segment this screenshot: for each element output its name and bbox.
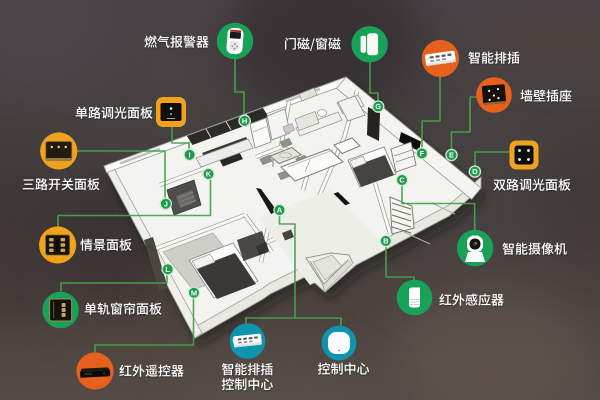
svg-text:L: L (165, 265, 170, 274)
svg-text:H: H (242, 116, 247, 125)
svg-text:D: D (472, 167, 478, 176)
svg-text:F: F (420, 149, 425, 158)
svg-text:I: I (189, 150, 191, 159)
svg-text:J: J (164, 199, 168, 208)
svg-text:A: A (277, 206, 283, 215)
svg-text:E: E (449, 151, 454, 160)
svg-text:B: B (383, 237, 389, 246)
svg-text:C: C (399, 176, 405, 185)
svg-text:G: G (375, 102, 381, 111)
svg-text:M: M (191, 288, 197, 297)
svg-text:K: K (206, 170, 212, 179)
